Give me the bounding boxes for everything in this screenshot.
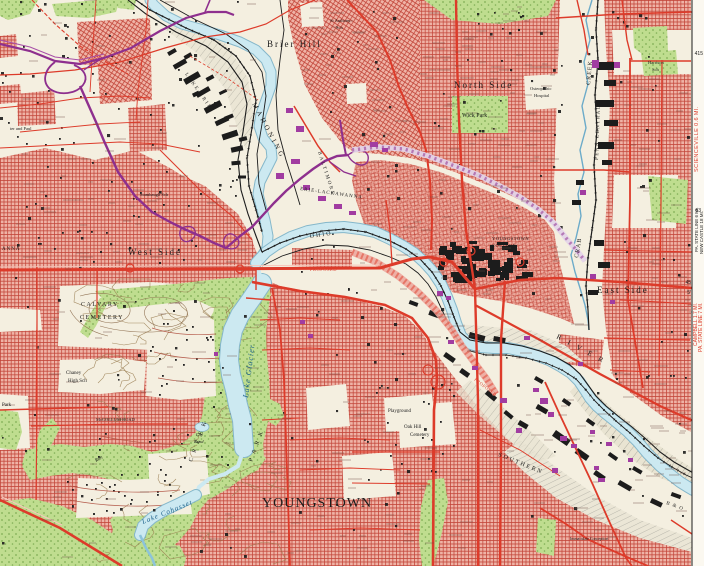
svg-text:East Side: East Side [597, 285, 649, 295]
svg-text:ANNA: ANNA [2, 247, 20, 252]
svg-text:Oak Hill: Oak Hill [404, 425, 422, 430]
svg-text:High Sch: High Sch [68, 379, 87, 384]
svg-text:CEMETERY: CEMETERY [80, 315, 124, 321]
svg-text:415: 415 [695, 51, 704, 57]
svg-text:Sch: Sch [336, 25, 344, 30]
svg-text:Hospital: Hospital [534, 93, 550, 98]
svg-text:McCOLLUM ROAD: McCOLLUM ROAD [96, 417, 136, 422]
svg-text:St Anthony: St Anthony [330, 18, 351, 23]
svg-text:SCIENCEVILLE 0.6 MI.: SCIENCEVILLE 0.6 MI. [694, 106, 700, 172]
svg-text:53: 53 [695, 208, 701, 214]
svg-text:Osteopathic: Osteopathic [530, 86, 552, 91]
svg-text:CALVARY: CALVARY [81, 302, 119, 308]
svg-text:Park: Park [2, 403, 12, 408]
svg-text:West Side: West Side [128, 247, 182, 257]
svg-text:Wick Park: Wick Park [462, 113, 487, 119]
svg-text:Playground: Playground [388, 409, 412, 414]
svg-text:YOUNGSTOWN: YOUNGSTOWN [262, 496, 372, 511]
svg-text:Sch: Sch [652, 67, 660, 72]
svg-text:YOUNGSTOWN: YOUNGSTOWN [492, 236, 529, 241]
svg-text:Brier Hill: Brier Hill [267, 39, 322, 49]
svg-text:ter and Paul: ter and Paul [10, 126, 32, 131]
svg-text:PA. STATE LINE 7 MI.: PA. STATE LINE 7 MI. [698, 303, 704, 352]
svg-text:Harrison: Harrison [648, 60, 664, 65]
svg-text:Stambaugh Sch: Stambaugh Sch [140, 192, 169, 197]
svg-text:NEW CASTLE 18 MI.: NEW CASTLE 18 MI. [699, 211, 704, 254]
svg-text:Chaney: Chaney [66, 371, 82, 376]
svg-text:5′: 5′ [687, 290, 691, 296]
svg-text:Immaculate Conception: Immaculate Conception [570, 536, 608, 541]
svg-text:COLLEGE: COLLEGE [492, 243, 516, 248]
svg-text:North Side: North Side [454, 80, 513, 90]
svg-text:PROPOSED: PROPOSED [310, 267, 337, 272]
svg-text:45: 45 [685, 280, 691, 286]
svg-text:Cemetery: Cemetery [410, 433, 430, 438]
